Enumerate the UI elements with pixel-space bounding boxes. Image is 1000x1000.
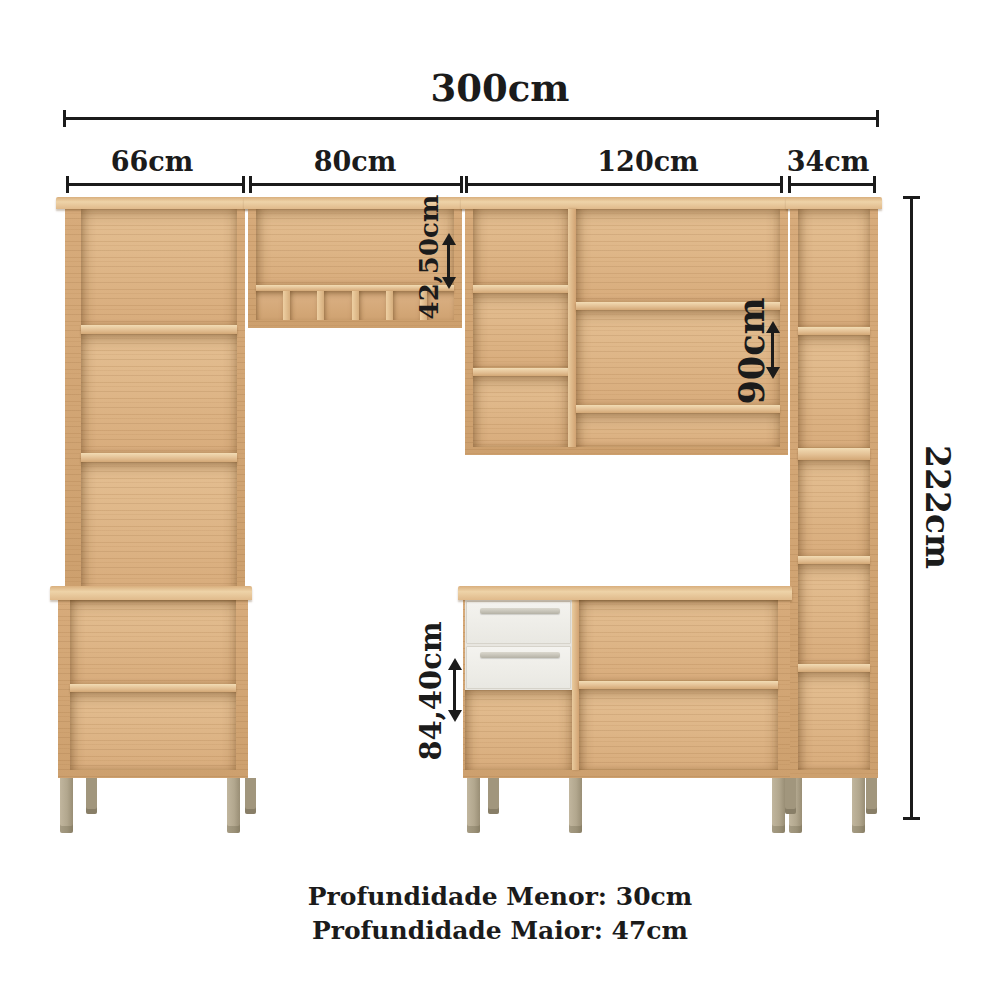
shelf-compartment bbox=[70, 600, 236, 684]
leg-front bbox=[227, 778, 240, 833]
shelf-compartment bbox=[81, 334, 237, 453]
shelf-compartment bbox=[576, 413, 780, 447]
leg-back bbox=[488, 778, 499, 814]
leg-back bbox=[866, 778, 877, 814]
shelf bbox=[70, 684, 236, 692]
shelf-compartment bbox=[798, 564, 870, 664]
cubby-divider bbox=[352, 291, 359, 320]
cubby-cell bbox=[256, 291, 283, 320]
shelf-compartment bbox=[473, 293, 568, 368]
cabinet-left-tall-top-board bbox=[56, 197, 252, 209]
shelf bbox=[798, 327, 870, 335]
arrow-base-cabinet-height bbox=[453, 669, 456, 711]
depth-note: Profundidade Menor: 30cm Profundidade Ma… bbox=[250, 880, 750, 948]
leg-back bbox=[785, 778, 796, 814]
cubby-cell bbox=[359, 291, 386, 320]
shelf-compartment bbox=[798, 672, 870, 770]
cabinet-right-tall-top-board bbox=[786, 197, 882, 209]
dim-label-segment-80: 80cm bbox=[314, 146, 397, 177]
drawer-handle bbox=[480, 652, 560, 658]
dim-line-segment-80 bbox=[250, 183, 462, 186]
vertical-divider bbox=[568, 209, 576, 447]
dim-line-total-height bbox=[910, 197, 913, 819]
arrow-upper-cabinet-height bbox=[447, 244, 450, 278]
shelf-compartment bbox=[798, 335, 870, 448]
shelf-compartment bbox=[473, 209, 568, 285]
shelf bbox=[798, 556, 870, 564]
shelf-compartment bbox=[70, 692, 236, 770]
dim-line-segment-66 bbox=[67, 183, 244, 186]
leg-front bbox=[852, 778, 865, 833]
dim-label-segment-34: 34cm bbox=[787, 146, 870, 177]
shelf bbox=[81, 325, 237, 334]
depth-minor-text: Profundidade Menor: 30cm bbox=[250, 880, 750, 914]
dim-label-base-cabinet-height: 84,40cm bbox=[414, 621, 448, 760]
drawer-handle bbox=[480, 608, 560, 614]
leg-front bbox=[569, 778, 582, 833]
dim-line-total-width bbox=[64, 117, 878, 120]
shelf-compartment bbox=[576, 209, 780, 302]
shelf-compartment bbox=[579, 689, 778, 770]
shelf bbox=[798, 664, 870, 672]
furniture-dimension-diagram: 300cm 66cm 80cm 120cm 34cm 222cm bbox=[0, 0, 1000, 1000]
arrow-hutch-height bbox=[771, 332, 774, 368]
leg-front bbox=[772, 778, 785, 833]
cubby-divider bbox=[386, 291, 393, 320]
dim-label-total-width: 300cm bbox=[431, 66, 570, 110]
cabinet-top-right-top-board bbox=[461, 197, 791, 209]
drawer-bottom bbox=[466, 646, 571, 689]
dim-line-segment-120 bbox=[466, 183, 782, 186]
dim-label-upper-cabinet-height: 42,50cm bbox=[414, 195, 444, 320]
shelf-compartment bbox=[798, 460, 870, 556]
shelf bbox=[473, 368, 568, 376]
vertical-divider bbox=[572, 600, 579, 770]
shelf-compartment bbox=[81, 462, 237, 590]
dim-label-hutch-height: 90cm bbox=[731, 297, 772, 404]
shelf-compartment bbox=[81, 209, 237, 325]
shelf bbox=[473, 285, 568, 293]
drawer-unit bbox=[465, 600, 572, 690]
cubby-cell bbox=[290, 291, 317, 320]
dim-label-segment-66: 66cm bbox=[111, 146, 194, 177]
cabinet-base-middle-top-board bbox=[458, 586, 792, 600]
leg-back bbox=[86, 778, 97, 814]
shelf-compartment bbox=[579, 600, 778, 681]
cubby-divider bbox=[283, 291, 290, 320]
shelf-compartment bbox=[798, 209, 870, 327]
leg-back bbox=[245, 778, 256, 814]
cubby-divider bbox=[317, 291, 324, 320]
dim-line-segment-34 bbox=[789, 183, 875, 186]
shelf-compartment bbox=[465, 690, 572, 770]
module-junction-board bbox=[798, 448, 870, 460]
dim-label-segment-120: 120cm bbox=[597, 146, 698, 177]
leg-front bbox=[60, 778, 73, 833]
shelf-compartment bbox=[473, 376, 568, 447]
drawer-top bbox=[466, 601, 571, 644]
shelf bbox=[81, 453, 237, 462]
cabinet-left-base-top-board bbox=[50, 586, 252, 600]
cubby-cell bbox=[324, 291, 351, 320]
shelf bbox=[576, 405, 780, 413]
shelf bbox=[579, 681, 778, 689]
dim-label-total-height: 222cm bbox=[918, 445, 957, 569]
leg-front bbox=[467, 778, 480, 833]
depth-major-text: Profundidade Maior: 47cm bbox=[250, 914, 750, 948]
